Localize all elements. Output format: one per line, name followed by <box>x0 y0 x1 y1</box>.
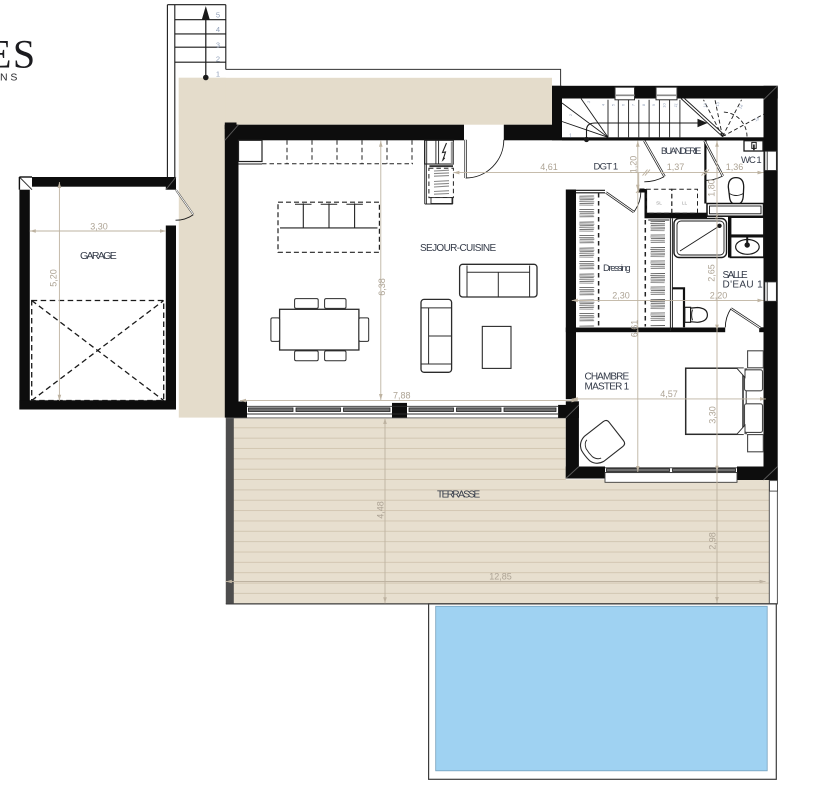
svg-text:3,30: 3,30 <box>708 406 718 424</box>
svg-text:6,38: 6,38 <box>377 278 387 296</box>
svg-text:SEJOUR-CUISINE: SEJOUR-CUISINE <box>420 243 497 254</box>
svg-text:2,98: 2,98 <box>708 532 718 550</box>
svg-text:BUANDERIE: BUANDERIE <box>661 146 702 156</box>
svg-text:2,30: 2,30 <box>612 290 630 300</box>
svg-text:ONS: ONS <box>0 72 20 84</box>
svg-text:4,48: 4,48 <box>376 501 386 519</box>
svg-text:WC 1: WC 1 <box>741 155 763 166</box>
svg-text:1: 1 <box>569 134 572 140</box>
svg-text:2: 2 <box>216 55 220 64</box>
svg-text:1,37: 1,37 <box>667 162 685 172</box>
svg-text:4,61: 4,61 <box>540 162 558 172</box>
svg-text:1,80: 1,80 <box>707 179 717 197</box>
svg-text:GARAGE: GARAGE <box>80 250 118 262</box>
svg-text:12,85: 12,85 <box>489 572 512 582</box>
svg-text:Dressing: Dressing <box>603 263 632 274</box>
svg-text:3,30: 3,30 <box>90 222 108 232</box>
svg-text:4: 4 <box>216 25 220 34</box>
svg-text:2,20: 2,20 <box>710 290 728 300</box>
svg-text:6,61: 6,61 <box>630 320 640 338</box>
svg-text:DGT 1: DGT 1 <box>594 162 620 173</box>
svg-text:SL: SL <box>656 201 662 207</box>
svg-text:7,88: 7,88 <box>393 391 411 401</box>
svg-text:4,57: 4,57 <box>660 389 678 399</box>
svg-text:2,65: 2,65 <box>707 264 717 282</box>
svg-text:1,20: 1,20 <box>629 156 639 174</box>
svg-text:TERRASSE: TERRASSE <box>437 490 481 501</box>
svg-text:1: 1 <box>216 70 220 79</box>
svg-text:ES: ES <box>0 32 37 77</box>
svg-text:MASTER 1: MASTER 1 <box>585 381 631 392</box>
svg-text:D'EAU 1: D'EAU 1 <box>723 279 764 290</box>
svg-text:5,20: 5,20 <box>49 269 59 287</box>
svg-text:5: 5 <box>216 11 220 20</box>
svg-text:LL: LL <box>682 201 688 207</box>
svg-text:3: 3 <box>216 41 220 50</box>
svg-text:10: 10 <box>662 103 667 108</box>
